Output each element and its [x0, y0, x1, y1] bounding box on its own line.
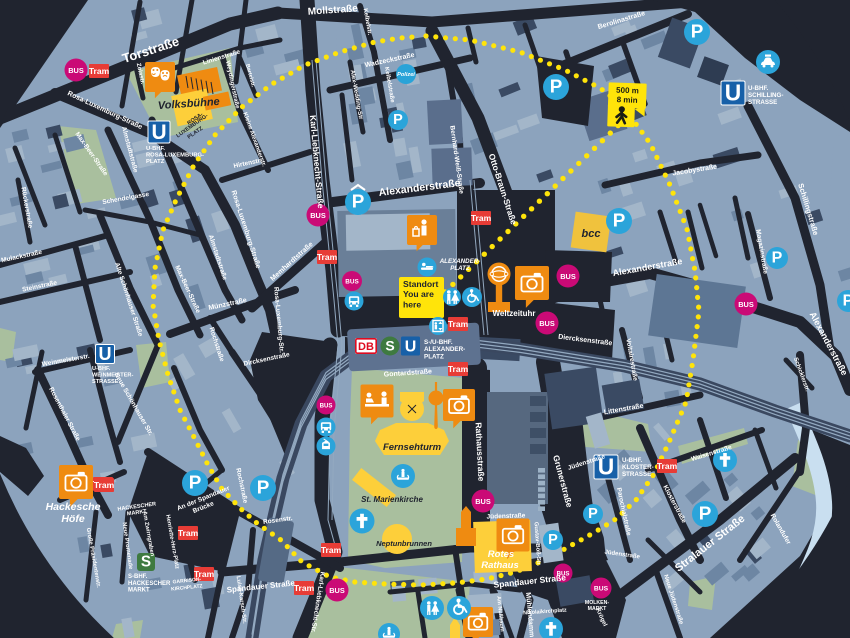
svg-text:Jüdenstraße: Jüdenstraße: [487, 512, 526, 520]
svg-text:Rathaus: Rathaus: [481, 560, 518, 571]
svg-text:PLATZ: PLATZ: [450, 265, 470, 272]
svg-text:BUS: BUS: [345, 279, 359, 286]
svg-text:Tram: Tram: [89, 66, 110, 76]
svg-text:BUS: BUS: [329, 586, 345, 595]
svg-text:8 min: 8 min: [617, 95, 638, 105]
svg-text:P: P: [772, 250, 783, 267]
svg-text:U: U: [98, 344, 111, 364]
svg-text:BUS: BUS: [310, 211, 326, 220]
svg-text:Rotes: Rotes: [488, 549, 514, 560]
svg-text:Tram: Tram: [94, 480, 115, 490]
svg-text:P: P: [257, 476, 270, 497]
svg-text:BUS: BUS: [539, 319, 555, 328]
svg-text:DB: DB: [358, 341, 374, 353]
svg-text:P: P: [189, 471, 202, 492]
svg-text:P: P: [393, 112, 403, 128]
svg-text:Fernsehturm: Fernsehturm: [383, 442, 442, 453]
svg-text:P: P: [550, 75, 563, 96]
svg-text:P: P: [588, 506, 598, 522]
svg-text:BUS: BUS: [475, 497, 491, 506]
svg-text:Tram: Tram: [657, 461, 678, 471]
svg-text:P: P: [548, 532, 558, 548]
svg-text:Tram: Tram: [294, 583, 315, 593]
svg-text:Polizei: Polizei: [397, 72, 415, 78]
svg-text:P: P: [699, 502, 712, 523]
svg-text:bcc: bcc: [582, 228, 601, 240]
svg-text:P: P: [352, 190, 365, 211]
svg-text:U: U: [151, 121, 166, 144]
svg-text:P: P: [691, 20, 704, 41]
svg-text:Tram: Tram: [178, 528, 199, 538]
svg-text:Tram: Tram: [448, 364, 469, 374]
svg-text:Höfe: Höfe: [61, 513, 84, 525]
svg-text:BUS: BUS: [738, 300, 754, 309]
svg-text:U: U: [725, 80, 741, 106]
svg-text:BUS: BUS: [320, 402, 333, 409]
svg-text:Neptunbrunnen: Neptunbrunnen: [376, 539, 432, 548]
svg-text:BUS: BUS: [560, 272, 576, 281]
svg-text:P: P: [613, 209, 626, 230]
svg-text:Tram: Tram: [321, 545, 342, 555]
svg-text:BUS: BUS: [68, 66, 84, 75]
svg-text:Tram: Tram: [471, 213, 492, 223]
svg-text:St. Marienkirche: St. Marienkirche: [361, 495, 423, 504]
svg-text:ALEXANDER-: ALEXANDER-: [439, 258, 481, 265]
svg-text:Hackesche: Hackesche: [46, 501, 101, 513]
svg-text:MARKT: MARKT: [588, 606, 608, 612]
svg-text:U: U: [405, 339, 417, 356]
svg-text:P: P: [843, 293, 850, 310]
svg-text:Tram: Tram: [448, 319, 469, 329]
svg-text:Tram: Tram: [317, 252, 338, 262]
svg-text:BUS: BUS: [594, 586, 609, 593]
svg-text:Weltzeituhr: Weltzeituhr: [493, 309, 536, 318]
svg-text:500 m: 500 m: [616, 86, 639, 96]
svg-text:S: S: [385, 338, 394, 354]
